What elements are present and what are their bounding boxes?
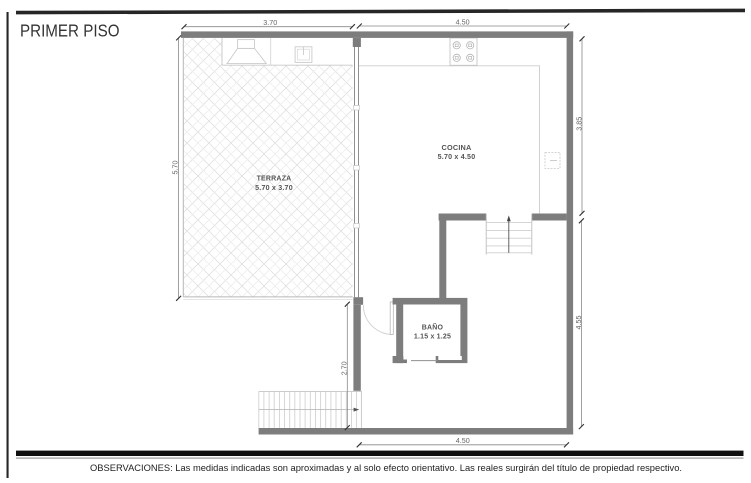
- svg-text:5.70: 5.70: [170, 161, 179, 175]
- svg-text:4.50: 4.50: [456, 436, 470, 445]
- svg-text:3.85: 3.85: [574, 117, 583, 131]
- svg-text:BAÑO: BAÑO: [422, 323, 444, 332]
- svg-text:5.70 x 3.70: 5.70 x 3.70: [255, 184, 293, 192]
- svg-text:4.55: 4.55: [574, 316, 583, 330]
- svg-text:TERRAZA: TERRAZA: [257, 176, 292, 183]
- svg-text:OBSERVACIONES: Las medidas ind: OBSERVACIONES: Las medidas indicadas son…: [90, 462, 682, 473]
- svg-text:COCINA: COCINA: [442, 143, 473, 152]
- svg-text:4.50: 4.50: [456, 17, 470, 26]
- svg-text:2.70: 2.70: [339, 361, 348, 375]
- svg-text:5.70 x 4.50: 5.70 x 4.50: [438, 153, 476, 161]
- svg-text:PRIMER PISO: PRIMER PISO: [20, 21, 120, 41]
- svg-text:1.15 x 1.25: 1.15 x 1.25: [414, 334, 451, 341]
- svg-text:3.70: 3.70: [263, 18, 277, 27]
